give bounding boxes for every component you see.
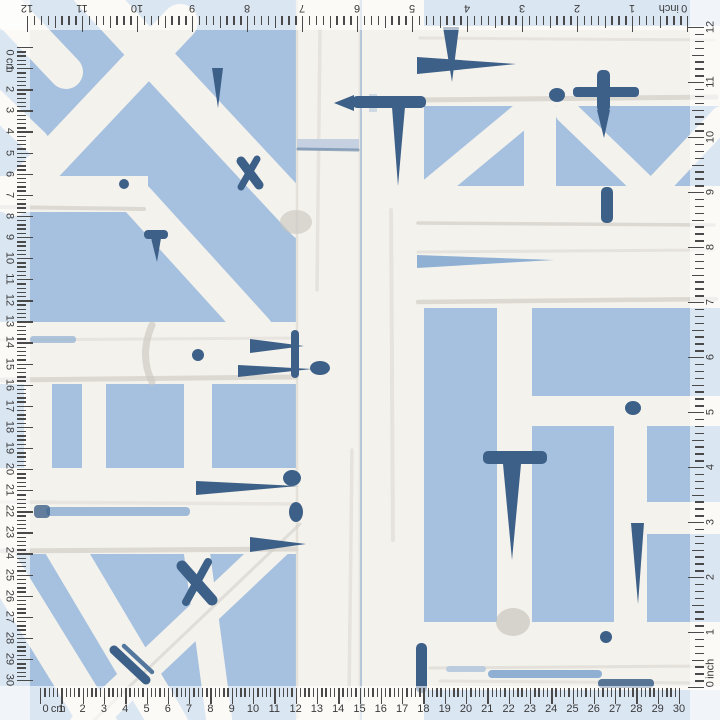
wallpaper-pattern [0, 0, 720, 720]
wallpaper-swatch-with-rulers: 0 inch123456789101112 0 inch123456789101… [0, 0, 720, 720]
